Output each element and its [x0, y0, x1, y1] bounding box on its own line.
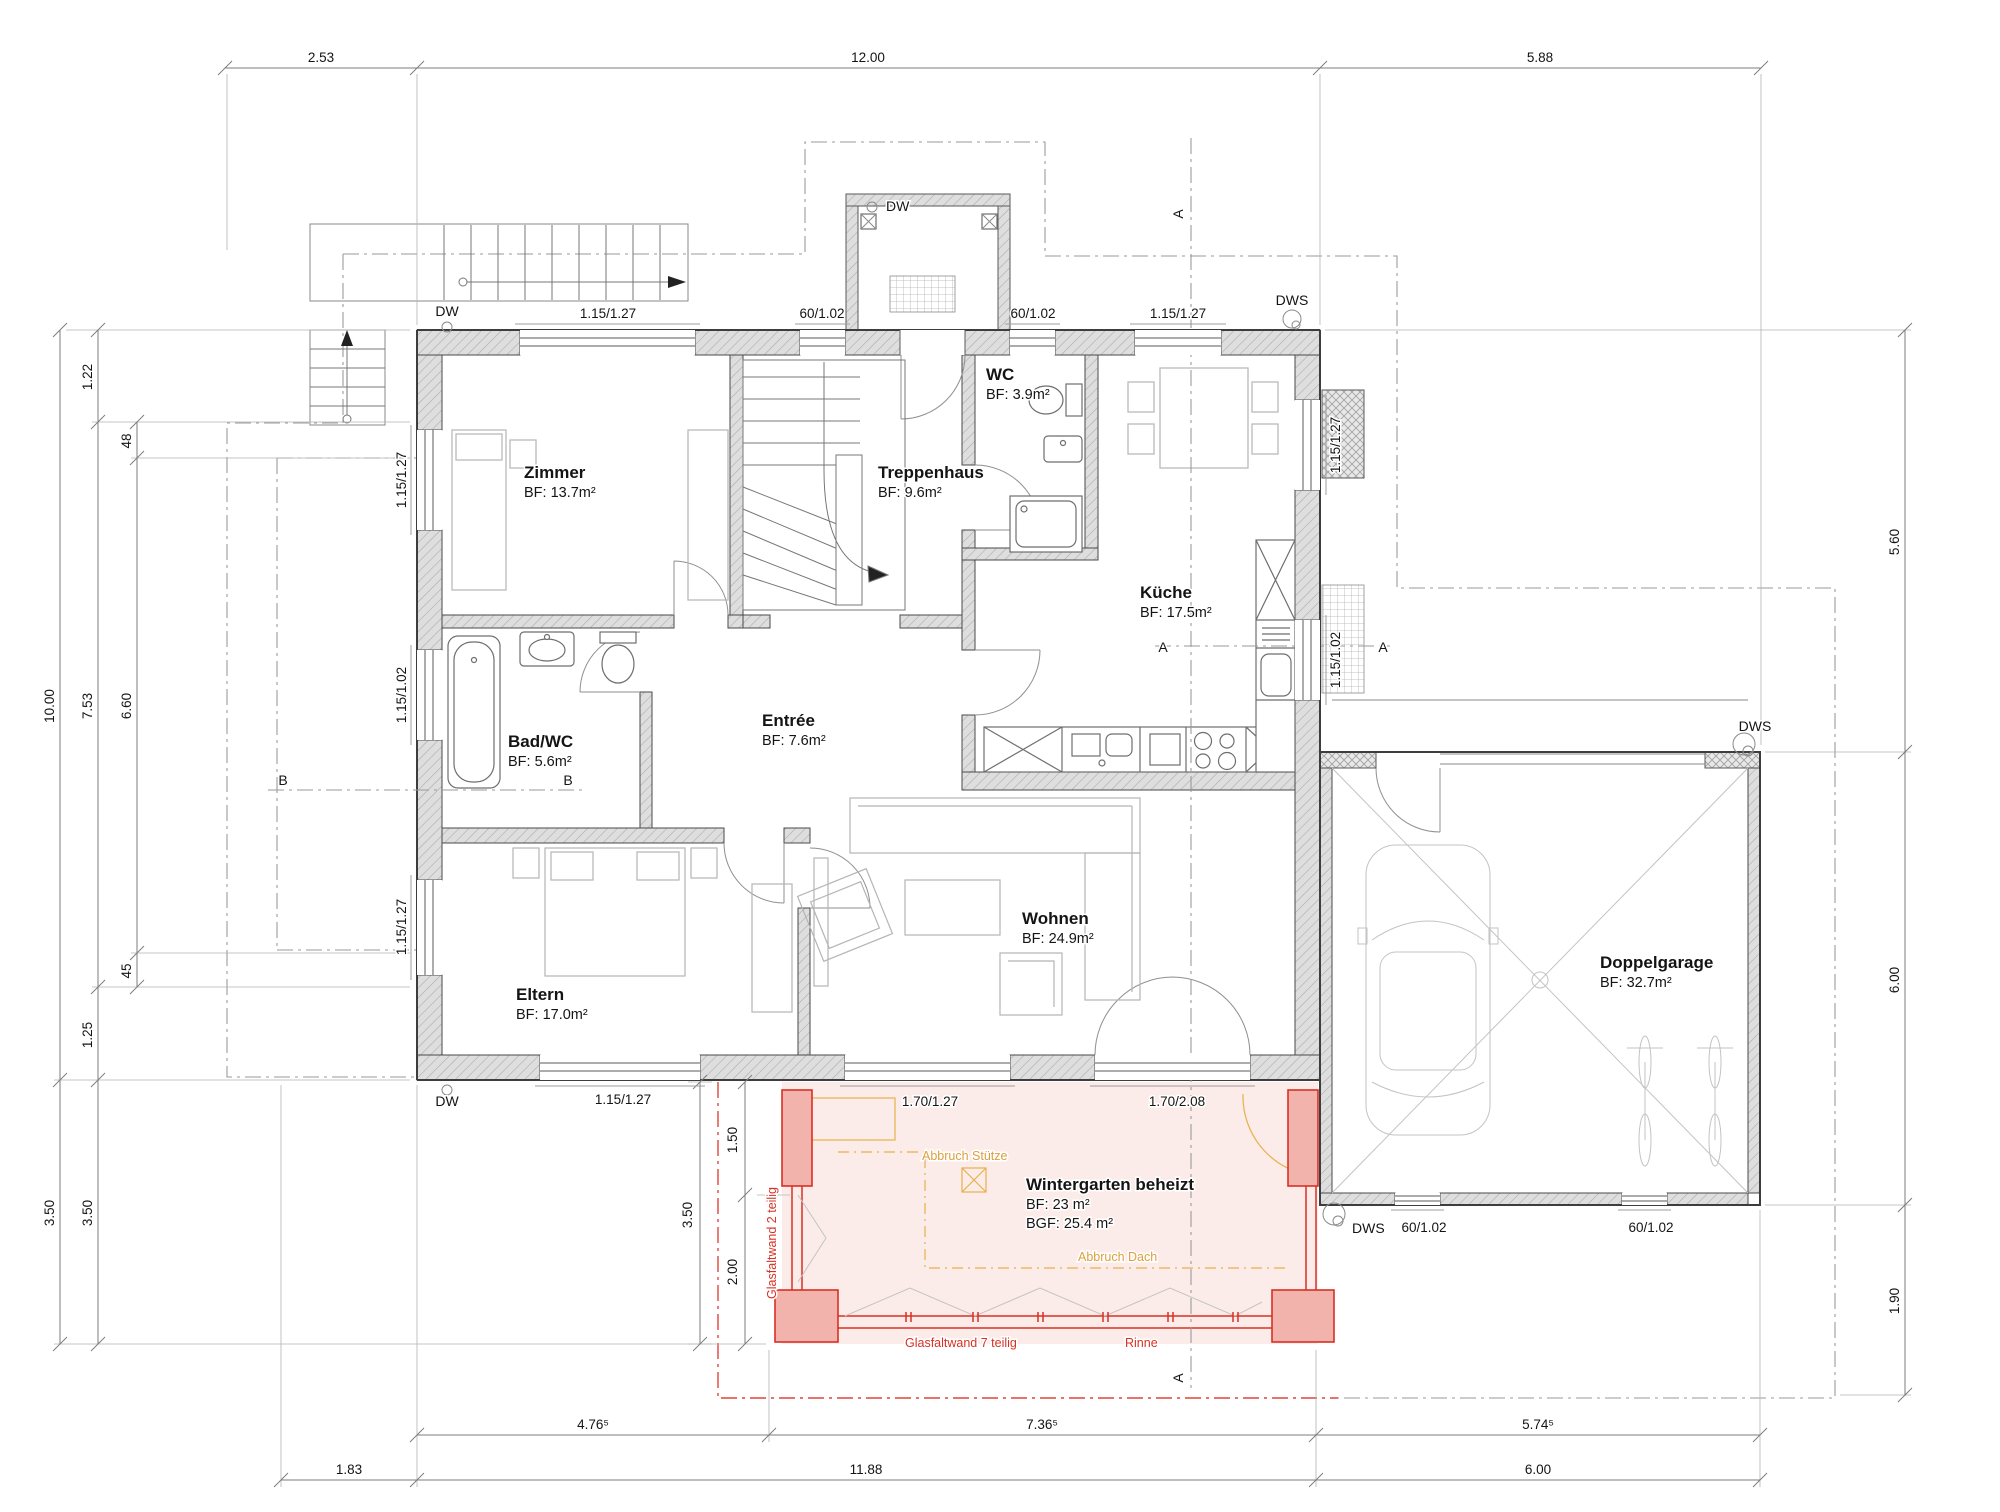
room-name-wintergarten: Wintergarten beheizt — [1026, 1175, 1194, 1194]
dws-symbol-garage-bl — [1323, 1203, 1345, 1226]
doormat — [890, 276, 955, 312]
marker-label: DW — [435, 1093, 459, 1109]
wc-fixtures — [1010, 384, 1082, 552]
dimension-label: 3.50 — [80, 1200, 95, 1226]
dws-symbol-top-right — [1283, 310, 1301, 329]
kitchen-fittings — [984, 368, 1295, 772]
wintergarten — [718, 1082, 1338, 1398]
room-area-kueche: BF: 17.5m² — [1140, 605, 1212, 621]
marker-label: B — [278, 772, 287, 788]
window-gbot — [1391, 1193, 1444, 1210]
room-name-wohnen: Wohnen — [1022, 909, 1089, 928]
dimension-label: 1.90 — [1887, 1288, 1902, 1314]
room-area-wohnen: BF: 24.9m² — [1022, 931, 1094, 947]
dim-chain — [53, 323, 67, 1351]
marker-label: A — [1158, 639, 1168, 655]
opening-size-label: 1.70/1.27 — [902, 1094, 958, 1109]
window-right — [1295, 395, 1326, 495]
dimension-label: 1.50 — [725, 1127, 740, 1153]
dimension-label: 1.25 — [80, 1022, 95, 1048]
window-top — [1005, 324, 1060, 355]
opening-size-label: 60/1.02 — [1628, 1220, 1673, 1235]
marker-label: DWS — [1276, 292, 1309, 308]
room-name-wc: WC — [986, 365, 1014, 384]
room-area-entree: BF: 7.6m² — [762, 733, 826, 749]
room-name-bad-wc: Bad/WC — [508, 732, 573, 751]
window-bottom — [1090, 1055, 1255, 1086]
marker-label: DW — [886, 198, 910, 214]
opening-size-label: 1.15/1.02 — [1328, 632, 1343, 688]
room-name-kueche: Küche — [1140, 583, 1192, 602]
dimension-label: 3.50 — [680, 1202, 695, 1228]
room-area-eltern: BF: 17.0m² — [516, 1007, 588, 1023]
dimension-label: 5.88 — [1527, 50, 1553, 65]
porch-columns — [861, 214, 997, 229]
room-area-treppenhaus: BF: 9.6m² — [878, 485, 942, 501]
dimension-label: 4.76⁵ — [577, 1417, 609, 1432]
window-top — [795, 324, 850, 355]
opening-size-label: 1.15/1.27 — [394, 452, 409, 508]
room-name-eltern: Eltern — [516, 985, 564, 1004]
dimension-label: 45 — [119, 963, 134, 978]
room-area-wc: BF: 3.9m² — [986, 387, 1050, 403]
dimension-label: 48 — [119, 433, 134, 448]
interior-walls — [442, 355, 1295, 1055]
dim-chain — [693, 1075, 707, 1351]
opening-size-label: 1.15/1.02 — [394, 667, 409, 723]
dining-table — [1160, 368, 1248, 468]
dim-chain — [738, 1075, 752, 1351]
marker-label: A — [1170, 209, 1186, 219]
window-gbot — [1618, 1193, 1671, 1210]
demolition-orange-label: Abbruch Stütze — [922, 1149, 1008, 1163]
room-area-wintergarten: BF: 23 m² — [1026, 1197, 1090, 1213]
dimension-label: 1.83 — [336, 1462, 362, 1477]
opening-size-label: 60/1.02 — [799, 306, 844, 321]
dim-chain — [91, 323, 105, 1351]
dimension-label: 5.60 — [1887, 529, 1902, 555]
marker-label: A — [1170, 1373, 1186, 1383]
entrance-door-opening — [900, 330, 965, 355]
entrance-porch — [846, 194, 1010, 330]
kitchen-counter-right — [1256, 540, 1295, 772]
dimension-label: 10.00 — [42, 689, 57, 723]
marker-label: DWS — [1352, 1220, 1385, 1236]
exterior-walls — [417, 330, 1320, 1080]
room-area-zimmer: BF: 13.7m² — [524, 485, 596, 501]
window-left — [411, 645, 442, 745]
wohnen-furniture — [798, 798, 1140, 1015]
marker-label: DW — [435, 303, 459, 319]
zimmer-furniture — [452, 430, 728, 600]
dim-chain — [410, 1428, 1767, 1442]
window-right — [1295, 615, 1326, 705]
marker-label: B — [563, 772, 572, 788]
room-area2-wintergarten: BGF: 25.4 m² — [1026, 1216, 1113, 1232]
dimension-label: 12.00 — [851, 50, 885, 65]
opening-size-label: 1.15/1.27 — [1328, 417, 1343, 473]
dimension-label: 7.36⁵ — [1026, 1417, 1058, 1432]
dimension-label: 7.53 — [80, 693, 95, 719]
window-left — [411, 875, 442, 980]
stair-up-arrow — [341, 330, 353, 346]
window-bottom — [840, 1055, 1015, 1086]
opening-size-label: 60/1.02 — [1401, 1220, 1446, 1235]
demolition-red-label: Rinne — [1125, 1336, 1158, 1350]
dimension-label: 6.00 — [1525, 1462, 1551, 1477]
demolition-orange-label: Abbruch Dach — [1078, 1250, 1157, 1264]
marker-label: DWS — [1739, 718, 1772, 734]
dimension-label: 2.53 — [308, 50, 334, 65]
demolition-red-label: Glasfaltwand 7 teilig — [905, 1336, 1017, 1350]
dimension-label: 5.74⁵ — [1522, 1417, 1554, 1432]
bicycles — [1627, 1036, 1733, 1166]
window-top — [515, 324, 700, 355]
window-bottom — [535, 1055, 705, 1086]
dim-chain — [1898, 323, 1912, 1402]
opening-size-label: 60/1.02 — [1010, 306, 1055, 321]
garage-cross — [1332, 768, 1748, 1193]
floor-plan-svg: 2.5312.005.8810.007.536.601.2248451.253.… — [0, 0, 2000, 1512]
stair-direction-arrow — [668, 276, 686, 288]
stair-treads-top — [444, 225, 660, 300]
floor-plan-sheet: 2.5312.005.8810.007.536.601.2248451.253.… — [0, 0, 2000, 1512]
car — [1358, 845, 1498, 1135]
opening-size-label: 1.15/1.27 — [394, 899, 409, 955]
opening-size-label: 1.15/1.27 — [1150, 306, 1206, 321]
opening-size-label: 1.15/1.27 — [580, 306, 636, 321]
room-area-bad-wc: BF: 5.6m² — [508, 754, 572, 770]
marker-label: A — [1378, 639, 1388, 655]
dimension-label: 1.22 — [80, 364, 95, 390]
room-area-doppelgarage: BF: 32.7m² — [1600, 975, 1672, 991]
dimension-label: 6.60 — [119, 693, 134, 719]
dimension-label: 2.00 — [725, 1259, 740, 1285]
demolition-red-label: Glasfaltwand 2 teilig — [765, 1187, 779, 1299]
kitchen-counter-bottom — [984, 727, 1295, 772]
window-top — [1130, 324, 1226, 355]
opening-size-label: 1.15/1.27 — [595, 1092, 651, 1107]
window-left — [411, 425, 442, 535]
dimension-label: 6.00 — [1887, 967, 1902, 993]
room-name-treppenhaus: Treppenhaus — [878, 463, 984, 482]
dimension-label: 3.50 — [42, 1200, 57, 1226]
room-name-entree: Entrée — [762, 711, 815, 730]
room-name-zimmer: Zimmer — [524, 463, 586, 482]
opening-size-label: 1.70/2.08 — [1149, 1094, 1205, 1109]
dimension-label: 11.88 — [850, 1462, 883, 1477]
room-name-doppelgarage: Doppelgarage — [1600, 953, 1713, 972]
